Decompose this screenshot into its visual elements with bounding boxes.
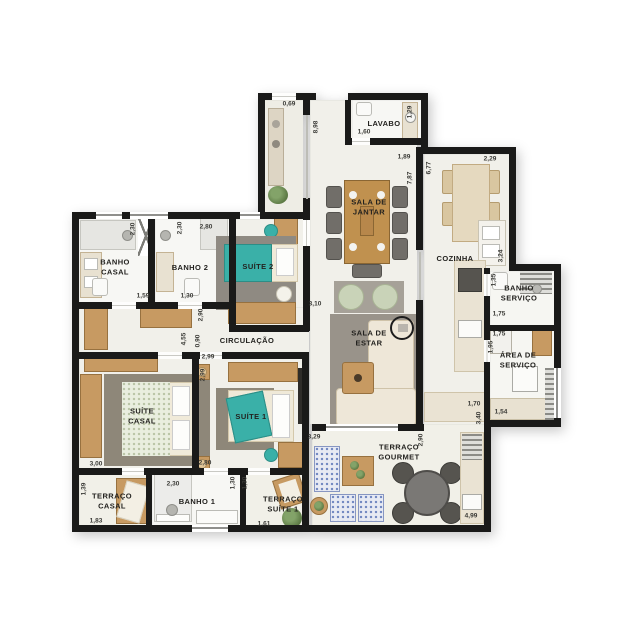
dimension-label: 1,35 bbox=[491, 274, 498, 287]
wall-segment bbox=[146, 472, 152, 528]
lavabo-toilet bbox=[356, 102, 372, 116]
dimension-label: 1,89 bbox=[398, 154, 411, 161]
wall-segment bbox=[421, 93, 428, 154]
suite-casal-pillow bbox=[172, 420, 190, 450]
window bbox=[554, 368, 561, 418]
suite2-wardrobe bbox=[228, 302, 296, 324]
wall-segment bbox=[303, 93, 310, 115]
room-label: SALA DE JANTAR bbox=[351, 197, 386, 217]
wall-segment bbox=[229, 219, 236, 332]
apartment-floor-plan: BANHO CASALBANHO 2SUÍTE 2LAVABOSALA DE J… bbox=[0, 0, 625, 625]
dimension-label: 8,98 bbox=[313, 121, 320, 134]
dimension-label: 2,80 bbox=[200, 224, 213, 231]
suite1-desk bbox=[278, 442, 304, 468]
gourmet-dining-table bbox=[404, 470, 450, 516]
suite1-pillow bbox=[272, 394, 290, 438]
door-opening bbox=[112, 302, 136, 309]
dimension-label: 2,99 bbox=[200, 369, 207, 382]
window bbox=[326, 424, 398, 431]
banho-casal-basin bbox=[84, 258, 98, 270]
wall-segment bbox=[72, 302, 232, 309]
dimension-label: 3,40 bbox=[476, 412, 483, 425]
wall-segment bbox=[72, 212, 79, 532]
suite1-wardrobe bbox=[228, 362, 298, 382]
wall-segment bbox=[312, 424, 326, 431]
suite1-chair bbox=[264, 448, 278, 462]
wall-segment bbox=[229, 325, 309, 332]
entry-railing bbox=[306, 115, 308, 199]
gourmet-armchair bbox=[330, 494, 356, 522]
dimension-label: 1,54 bbox=[495, 409, 508, 416]
room-label: SUÍTE 1 bbox=[235, 412, 266, 422]
dining-chair bbox=[392, 238, 408, 260]
window bbox=[240, 212, 260, 219]
room-label: BANHO 2 bbox=[172, 263, 209, 273]
dimension-label: 2,99 bbox=[202, 354, 215, 361]
dimension-label: 1,75 bbox=[493, 311, 506, 318]
dimension-label: 2,30 bbox=[167, 481, 180, 488]
gourmet-planter-plant bbox=[314, 501, 324, 511]
kitchen-island-sink bbox=[482, 226, 500, 240]
room-label: SALA DE ESTAR bbox=[351, 328, 386, 348]
wall-segment bbox=[302, 352, 309, 532]
kitchen-sink bbox=[458, 320, 482, 338]
door-opening bbox=[352, 138, 370, 145]
dimension-label: 3,00 bbox=[90, 461, 103, 468]
dimension-label: 1,83 bbox=[90, 518, 103, 525]
wall-segment bbox=[509, 147, 516, 271]
dimension-label: 7,87 bbox=[407, 172, 414, 185]
dimension-label: 4,99 bbox=[465, 513, 478, 520]
dimension-label: 2,30 bbox=[130, 223, 137, 236]
corridor-cabinet bbox=[84, 306, 108, 350]
window bbox=[96, 212, 122, 219]
door-opening bbox=[303, 220, 310, 246]
dimension-label: 1,60 bbox=[358, 129, 371, 136]
dimension-label: 2,29 bbox=[484, 156, 497, 163]
dining-chair bbox=[326, 212, 342, 234]
door-opening bbox=[248, 468, 270, 475]
dimension-label: 2,30 bbox=[177, 222, 184, 235]
dimension-label: 1,30 bbox=[242, 477, 249, 490]
gourmet-plant bbox=[350, 461, 359, 470]
wall-segment bbox=[488, 420, 561, 427]
dimension-label: 1,30 bbox=[181, 293, 194, 300]
dimension-label: 4,55 bbox=[181, 333, 188, 346]
suite2-pillow bbox=[276, 248, 294, 276]
banho1-toilet bbox=[166, 504, 178, 516]
pouf bbox=[338, 284, 364, 310]
banho-casal-toilet bbox=[92, 278, 108, 296]
room-label: TERRAÇO SUÍTE 1 bbox=[263, 494, 303, 514]
dimension-label: 1,61 bbox=[258, 521, 271, 528]
door-opening bbox=[122, 468, 144, 475]
hall-vase bbox=[272, 120, 280, 128]
dimension-label: 3,24 bbox=[498, 250, 505, 263]
dimension-label: 1,30 bbox=[230, 477, 237, 490]
kitchen-stove bbox=[458, 268, 482, 292]
coffee-table-decor bbox=[354, 374, 362, 382]
corridor-cabinet bbox=[140, 308, 192, 328]
room-label: TERRAÇO GOURMET bbox=[378, 442, 419, 462]
wall-segment bbox=[258, 93, 265, 219]
door-opening bbox=[158, 352, 182, 359]
room-label: SUÍTE 2 bbox=[242, 262, 273, 272]
floor-lamp-base bbox=[398, 324, 408, 332]
kitchen-pass-through bbox=[419, 252, 421, 300]
dining-chair bbox=[326, 186, 342, 208]
wall-segment bbox=[72, 525, 491, 532]
wall-segment bbox=[258, 212, 310, 219]
dimension-label: 1,59 bbox=[137, 293, 150, 300]
hall-vase bbox=[272, 140, 280, 148]
dimension-label: 2,90 bbox=[418, 434, 425, 447]
dining-chair bbox=[326, 238, 342, 260]
room-label: CIRCULAÇÃO bbox=[220, 336, 274, 346]
suite-casal-pillow bbox=[172, 386, 190, 416]
room-label: ÁREA DE SERVIÇO bbox=[500, 350, 536, 370]
room-label: LAVABO bbox=[368, 119, 401, 129]
wall-segment bbox=[72, 352, 309, 359]
wall-segment bbox=[424, 147, 516, 154]
gourmet-armchair bbox=[358, 494, 384, 522]
wall-segment bbox=[416, 300, 423, 431]
gourmet-sofa bbox=[314, 446, 340, 492]
room-label: BANHO 1 bbox=[179, 497, 216, 507]
dining-chair bbox=[352, 264, 382, 278]
floor-plan-image: BANHO CASALBANHO 2SUÍTE 2LAVABOSALA DE J… bbox=[0, 0, 625, 625]
banho1-vanity bbox=[196, 510, 238, 524]
door-opening bbox=[484, 274, 490, 296]
dimension-label: 0,69 bbox=[283, 101, 296, 108]
suite2-stool bbox=[276, 286, 292, 302]
dining-plate bbox=[377, 243, 385, 251]
wall-segment bbox=[484, 424, 491, 532]
dimension-label: 6,77 bbox=[426, 162, 433, 175]
window bbox=[130, 212, 168, 219]
banho-2-sink bbox=[160, 230, 171, 241]
dimension-label: 2,90 bbox=[198, 309, 205, 322]
dining-plate bbox=[349, 243, 357, 251]
wall-segment bbox=[416, 147, 423, 250]
laundry-tank bbox=[512, 366, 538, 392]
dining-chair bbox=[392, 186, 408, 208]
room-label: TERRAÇO CASAL bbox=[92, 491, 132, 511]
dimension-label: 1,29 bbox=[407, 106, 414, 119]
wall-segment bbox=[72, 468, 309, 475]
dimension-label: 1,70 bbox=[468, 401, 481, 408]
dimension-label: 3,10 bbox=[309, 301, 322, 308]
dimension-label: 0,90 bbox=[195, 335, 202, 348]
gourmet-plant bbox=[356, 470, 365, 479]
gourmet-sink bbox=[462, 494, 482, 510]
dining-chair bbox=[392, 212, 408, 234]
dimension-label: 2,80 bbox=[199, 460, 212, 467]
dimension-label: 1,95 bbox=[488, 341, 495, 354]
wall-segment bbox=[398, 424, 424, 431]
gourmet-grill bbox=[462, 434, 482, 460]
wall-segment bbox=[348, 93, 428, 100]
door-opening bbox=[204, 468, 228, 475]
laundry-louver-door bbox=[545, 368, 554, 420]
wall-segment bbox=[192, 352, 199, 475]
dimension-label: 1,39 bbox=[81, 483, 88, 496]
suite-casal-unit bbox=[80, 374, 102, 458]
room-label: SUÍTE CASAL bbox=[128, 406, 156, 426]
room-label: BANHO SERVIÇO bbox=[501, 283, 537, 303]
window bbox=[192, 525, 228, 532]
dimension-label: 1,75 bbox=[493, 331, 506, 338]
room-label: BANHO CASAL bbox=[100, 257, 130, 277]
pouf bbox=[372, 284, 398, 310]
dimension-label: 3,29 bbox=[308, 434, 321, 441]
room-label: COZINHA bbox=[437, 254, 474, 264]
hall-plant bbox=[268, 186, 288, 204]
door-opening bbox=[272, 93, 296, 100]
